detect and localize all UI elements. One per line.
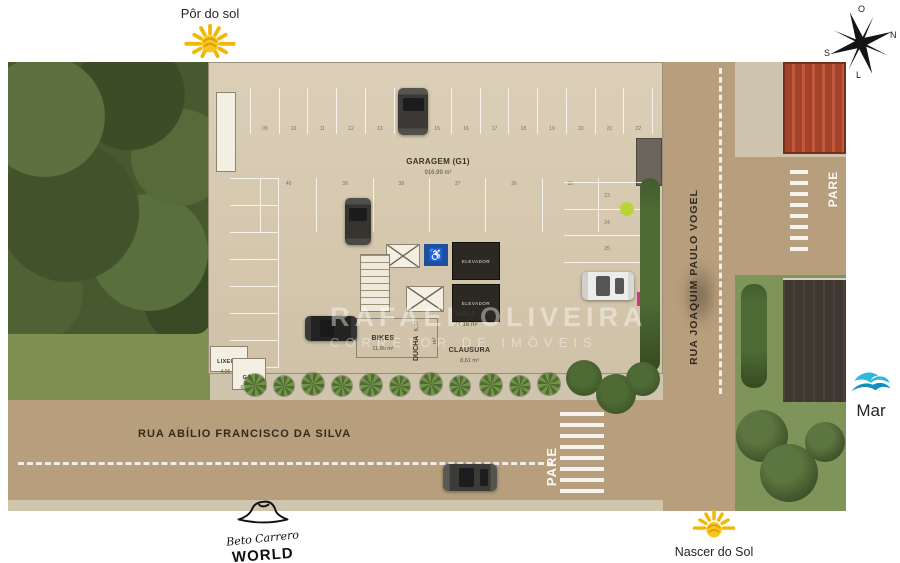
palm-tree xyxy=(360,374,382,396)
garage-title: GARAGEM (G1) 916,99 m² xyxy=(338,150,538,178)
parking-stall-number: 20 xyxy=(566,88,595,134)
beto-carrero-world-logo: Beto Carrero WORLD xyxy=(218,498,308,563)
palm-tree xyxy=(420,373,442,395)
parked-car xyxy=(305,316,357,341)
parking-stall-number: 16 xyxy=(451,88,480,134)
palm-tree xyxy=(480,374,502,396)
site-plan-page: Pôr do sol xyxy=(0,0,900,563)
parking-row-top: 0910111213141516171819202122 xyxy=(250,88,653,134)
east-street-centerline xyxy=(719,68,722,394)
east-stop-marking: PARE xyxy=(815,180,841,198)
east-crosswalk xyxy=(790,170,808,256)
clausura-label: CLAUSURA 8,61 m² xyxy=(422,338,517,365)
palm-tree xyxy=(390,376,410,396)
cowboy-hat-icon xyxy=(232,498,294,524)
palm-tree xyxy=(274,376,294,396)
south-sidewalk xyxy=(8,500,735,511)
driving-car xyxy=(443,464,497,491)
parking-column-left xyxy=(230,178,279,368)
logo-world-text: WORLD xyxy=(232,545,295,563)
parking-stall-number: 12 xyxy=(336,88,365,134)
red-roof-building xyxy=(783,62,846,154)
sunset-sun-icon xyxy=(148,21,272,64)
tree-shadow xyxy=(681,260,719,330)
planter-east xyxy=(741,284,767,388)
parking-stall-number: 37 xyxy=(429,178,485,232)
elevator-1: ELEVADOR xyxy=(452,242,500,280)
site-plan-render: RUA ABÍLIO FRANCISCO DA SILVA PARE RUA J… xyxy=(8,62,846,511)
parking-stall-number: 36 xyxy=(485,178,541,232)
waves-icon xyxy=(848,368,894,396)
parking-column-right: 232425 xyxy=(564,182,650,263)
parking-stall-number: 19 xyxy=(537,88,566,134)
palm-tree xyxy=(332,376,352,396)
parking-stall-number: 13 xyxy=(365,88,394,134)
garage-area: 916,99 m² xyxy=(338,170,538,178)
parking-stall-number: 11 xyxy=(307,88,336,134)
compass-east-letter: L xyxy=(856,70,861,80)
palm-tree xyxy=(302,373,324,395)
parked-car xyxy=(398,88,428,135)
garage-name: GARAGEM (G1) xyxy=(406,157,470,166)
compass-north-letter: N xyxy=(890,30,897,40)
stairwell xyxy=(360,254,390,312)
south-crosswalk xyxy=(560,412,604,500)
forest-left xyxy=(8,62,210,334)
planter-right xyxy=(640,178,660,372)
parking-stall-number: 18 xyxy=(508,88,537,134)
annex-room xyxy=(216,92,236,172)
corner-bush xyxy=(626,362,660,396)
sunrise-label: Nascer do Sol xyxy=(656,545,772,559)
parked-car-white xyxy=(582,272,634,300)
parking-stall-number: 22 xyxy=(623,88,652,134)
east-block: PARE xyxy=(735,62,846,511)
compass-west-letter: O xyxy=(858,4,865,14)
accessibility-icon: ♿ xyxy=(424,244,448,266)
south-stop-marking: PARE xyxy=(532,458,562,476)
parking-stall-number: 25 xyxy=(564,235,650,262)
parked-car xyxy=(345,198,371,245)
compass-south-letter: S xyxy=(824,48,830,58)
bikes-label: BIKES 11,90 m² xyxy=(358,326,408,353)
small-tree-dot xyxy=(620,202,634,216)
parking-row-middle: 403938373635 xyxy=(260,178,599,232)
sea-label: Mar xyxy=(843,401,899,421)
parking-stall-number: 17 xyxy=(480,88,509,134)
parking-stall-number: 24 xyxy=(564,209,650,236)
parking-stall-number: 23 xyxy=(564,182,650,209)
palm-tree xyxy=(510,376,530,396)
parking-stall-number: 21 xyxy=(595,88,624,134)
tree-canopy xyxy=(805,422,845,462)
sea-annotation: Mar xyxy=(843,368,899,421)
shaft-x-box xyxy=(386,244,420,268)
palm-tree xyxy=(244,374,266,396)
palm-tree xyxy=(538,373,560,395)
sunrise-sun-icon xyxy=(656,506,772,545)
parking-stall-number: 10 xyxy=(279,88,308,134)
dark-building xyxy=(783,278,846,402)
south-street: RUA ABÍLIO FRANCISCO DA SILVA PARE xyxy=(8,400,735,500)
east-street: RUA JOAQUIM PAULO VOGEL xyxy=(663,62,735,511)
hall-label: HALL 24,16 m² xyxy=(426,302,506,330)
palm-tree xyxy=(450,376,470,396)
sunset-annotation: Pôr do sol xyxy=(148,6,272,64)
parking-stall-number: 09 xyxy=(250,88,279,134)
sunrise-annotation: Nascer do Sol xyxy=(656,506,772,559)
wheelchair-glyph: ♿ xyxy=(429,248,444,262)
parking-stall-number: 38 xyxy=(373,178,429,232)
sunset-label: Pôr do sol xyxy=(148,6,272,21)
south-street-name: RUA ABÍLIO FRANCISCO DA SILVA xyxy=(138,428,351,440)
